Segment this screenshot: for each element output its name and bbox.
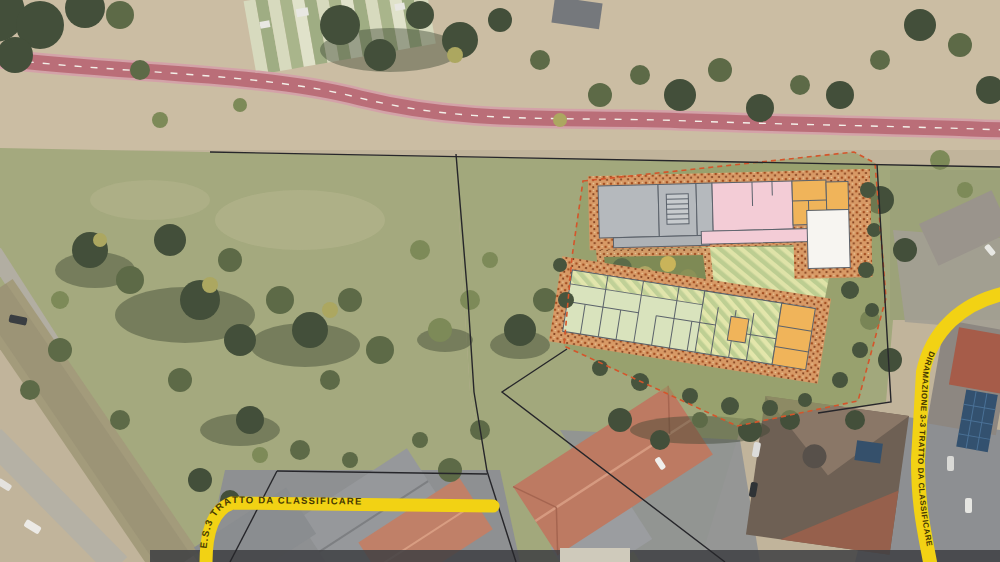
aerial-map: E.S.3 TRATTO DA CLASSIFICARE DIRAMAZIONE… [0,0,1000,562]
dry-grass-patch [90,180,210,220]
light-building-bottom [560,548,630,562]
map-canvas: E.S.3 TRATTO DA CLASSIFICARE DIRAMAZIONE… [0,0,1000,562]
pink-corridor [701,228,823,244]
solar-panel [854,440,883,463]
gray-room [598,184,659,238]
dark-villa [746,396,909,555]
car [947,456,954,471]
car [965,498,972,513]
orange-room [826,182,849,211]
orange-room-small [727,316,749,343]
gray-terrace [613,235,709,248]
dry-grass-patch [215,190,385,250]
white-room [807,209,851,268]
